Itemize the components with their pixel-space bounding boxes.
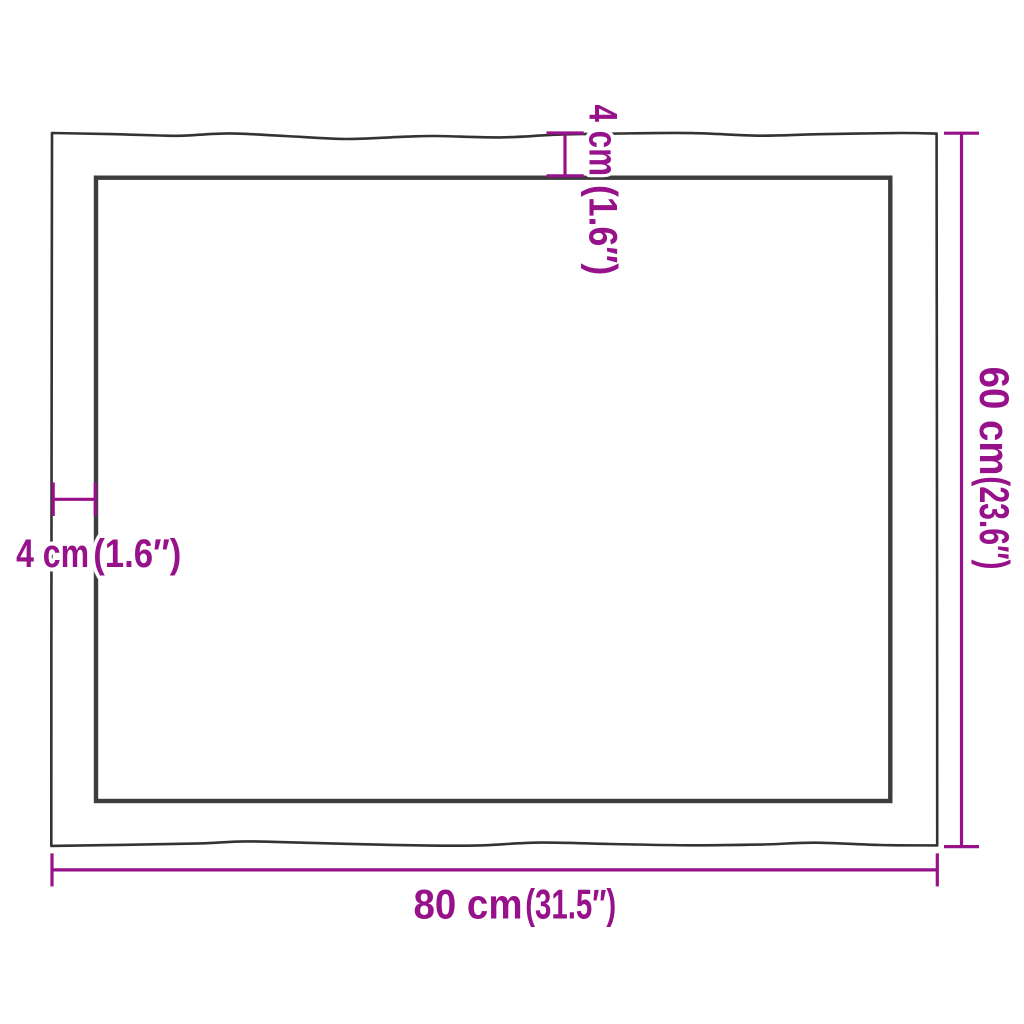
svg-text:80 cm: 80 cm xyxy=(414,880,523,927)
svg-text:(1.6″): (1.6″) xyxy=(580,185,624,275)
svg-text:4 cm: 4 cm xyxy=(580,105,624,177)
svg-text:4 cm: 4 cm xyxy=(16,532,89,576)
svg-text:(23.6″): (23.6″) xyxy=(971,476,1018,569)
svg-text:60 cm: 60 cm xyxy=(971,367,1018,476)
svg-text:(1.6″): (1.6″) xyxy=(93,532,181,576)
svg-text:(31.5″): (31.5″) xyxy=(525,880,616,927)
